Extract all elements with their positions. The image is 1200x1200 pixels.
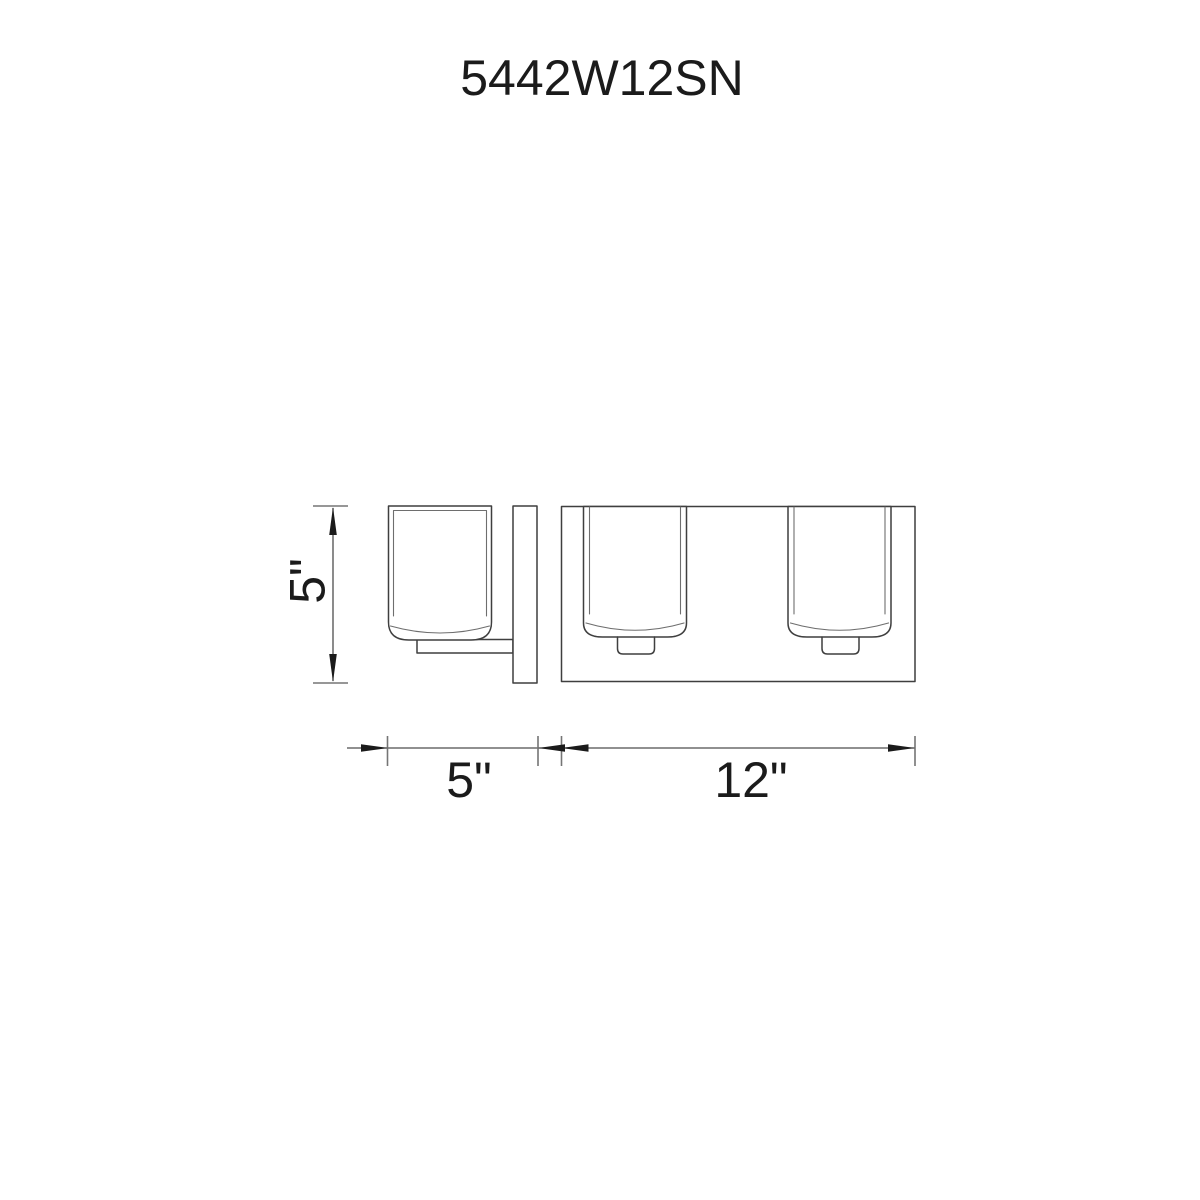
- dim-arrow-left-outside: [538, 744, 565, 752]
- mounting-arm: [417, 640, 513, 654]
- side-shade: [389, 506, 492, 640]
- dim-arrow-up: [329, 507, 337, 535]
- height-dimension: 5": [280, 506, 349, 683]
- glass-shade: [584, 507, 687, 638]
- height-dimension-label: 5": [280, 558, 336, 604]
- dim-arrow-left-inside: [562, 744, 589, 752]
- dim-arrow-right-outside: [361, 744, 388, 752]
- wall-plate: [513, 506, 537, 683]
- side-view: [389, 506, 538, 683]
- lamp-unit-right: [788, 507, 891, 655]
- width-dimension-label: 12": [714, 752, 787, 808]
- lamp-unit-left: [584, 507, 687, 655]
- glass-shade: [788, 507, 891, 638]
- dim-arrow-right-inside: [888, 744, 915, 752]
- diagram-page: 5442W12SN: [0, 0, 1200, 1200]
- depth-dimension-label: 5": [446, 752, 492, 808]
- technical-drawing-canvas: 5442W12SN: [0, 0, 1200, 1200]
- front-view: [562, 507, 916, 682]
- dim-arrow-down: [329, 654, 337, 682]
- drawing-title: 5442W12SN: [460, 50, 744, 106]
- bottom-dimensions: 5" 12": [347, 736, 915, 808]
